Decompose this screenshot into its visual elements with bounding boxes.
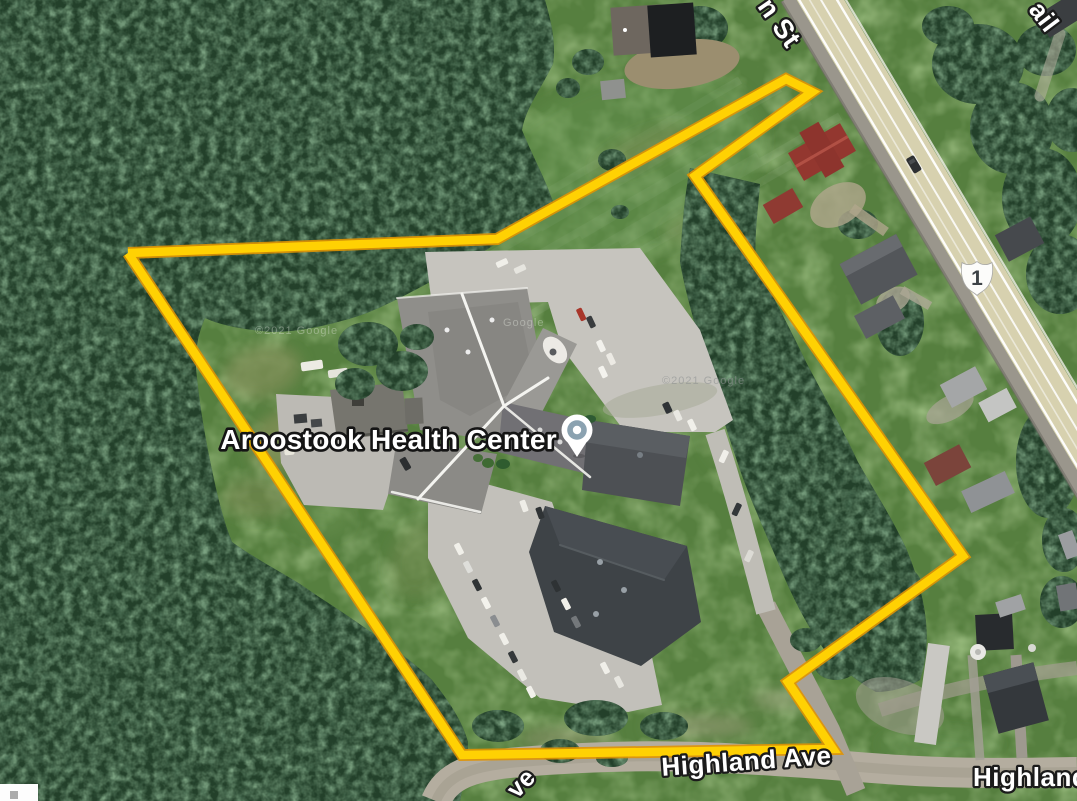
satellite-map: ©2021 Google Google ©2021 Google n St ai…: [0, 0, 1077, 801]
satellite-map-viewport: ©2021 Google Google ©2021 Google n St ai…: [0, 0, 1077, 801]
corner-ui-fragment: [0, 784, 38, 801]
road-label-highland: Highland A: [973, 762, 1077, 792]
place-label[interactable]: Aroostook Health Center: [220, 424, 557, 455]
watermark: ©2021 Google: [662, 375, 745, 387]
watermark: ©2021 Google: [255, 325, 338, 337]
route-shield-number: 1: [971, 267, 983, 290]
watermark: Google: [503, 317, 544, 329]
